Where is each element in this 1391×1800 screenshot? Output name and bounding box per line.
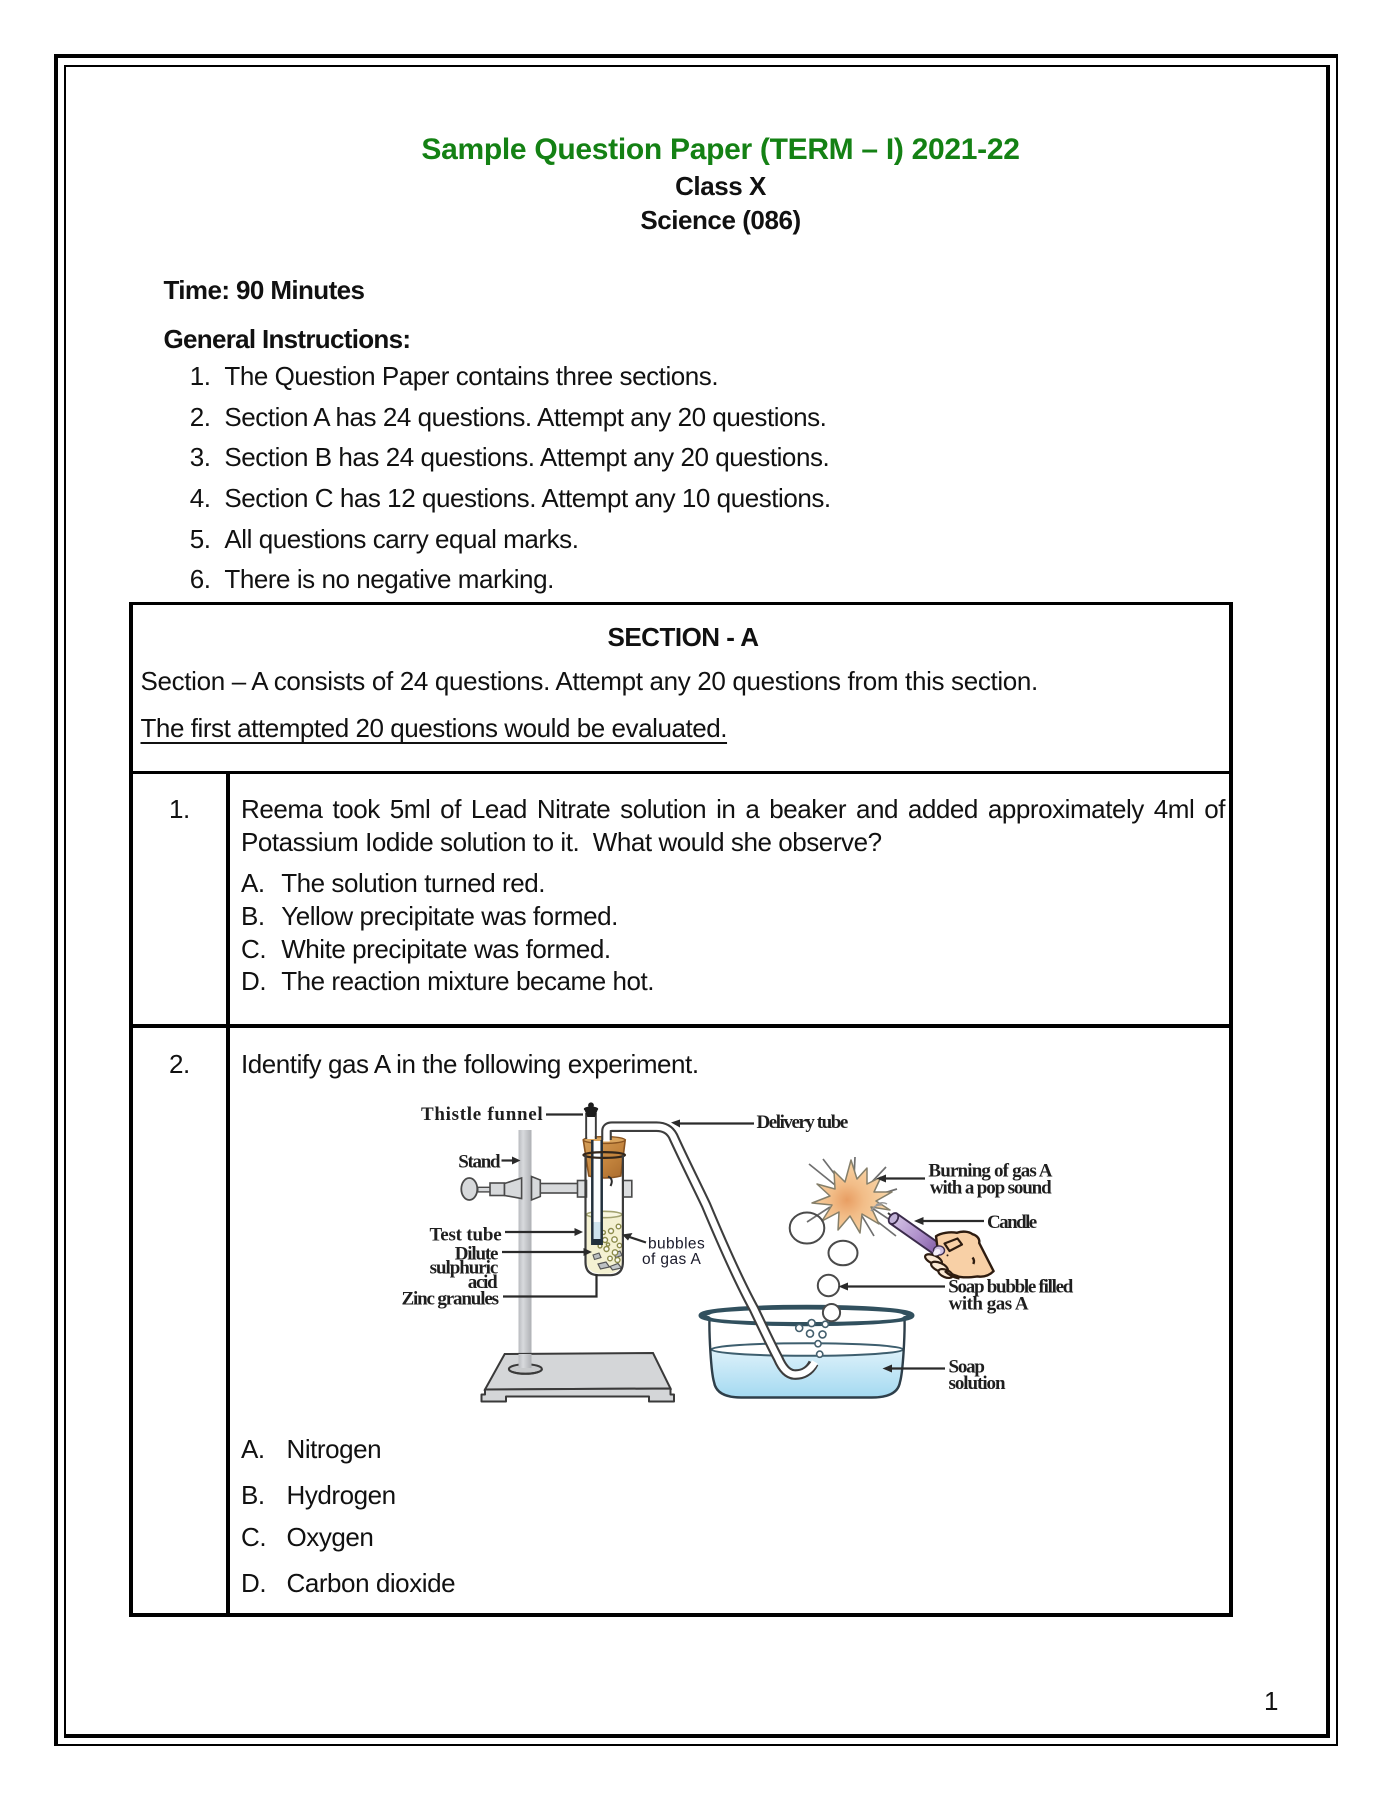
svg-text:Stand: Stand: [458, 1152, 501, 1173]
svg-text:Delivery tube: Delivery tube: [757, 1112, 848, 1133]
svg-text:solution: solution: [949, 1373, 1006, 1394]
svg-text:of gas A: of gas A: [642, 1251, 701, 1268]
svg-text:bubbles: bubbles: [648, 1236, 705, 1253]
svg-text:Zinc granules: Zinc granules: [401, 1289, 498, 1310]
svg-text:with gas A: with gas A: [949, 1294, 1029, 1315]
svg-text:Test tube: Test tube: [429, 1225, 501, 1246]
svg-text:with a pop sound: with a pop sound: [930, 1178, 1052, 1199]
svg-text:Candle: Candle: [987, 1212, 1037, 1233]
svg-text:Thistle funnel: Thistle funnel: [421, 1104, 543, 1125]
